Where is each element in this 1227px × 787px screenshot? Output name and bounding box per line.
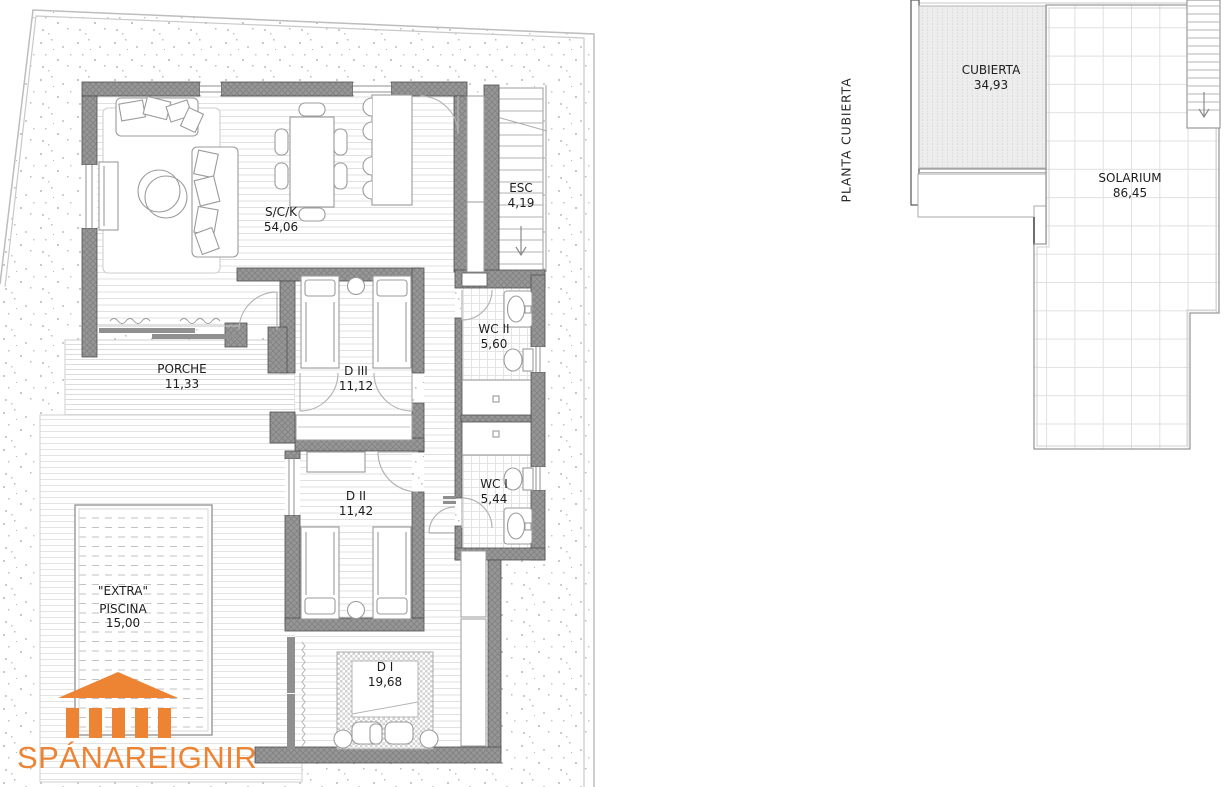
company-logo-text: SPÁNAREIGNIR bbox=[17, 740, 257, 776]
wc2-toilet bbox=[504, 349, 533, 371]
exterior-stair bbox=[497, 85, 547, 272]
room-label-solarium: SOLARIUM86,45 bbox=[1098, 171, 1161, 201]
room-label-d1: D I19,68 bbox=[368, 660, 402, 690]
room-label-esc: ESC4,19 bbox=[508, 181, 535, 211]
wc1-sink bbox=[504, 508, 532, 544]
porch-roof bbox=[918, 174, 1046, 217]
blueprint-canvas: S/C/K54,06 ESC4,19 WC II5,60 D III11,12 … bbox=[0, 0, 1227, 787]
roof-plan-title: PLANTA CUBIERTA bbox=[839, 78, 854, 203]
roof-plan bbox=[911, 0, 1220, 449]
stair-landing bbox=[462, 273, 487, 286]
sofa-top bbox=[116, 96, 203, 136]
room-label-sck: S/C/K54,06 bbox=[264, 205, 298, 235]
temple-icon bbox=[58, 672, 178, 738]
room-label-d2: D II11,42 bbox=[339, 489, 373, 519]
room-label-cubierta: CUBIERTA34,93 bbox=[962, 63, 1021, 93]
built-in-cupboard bbox=[467, 96, 484, 272]
wc1-toilet bbox=[504, 468, 533, 490]
room-label-wc2: WC II5,60 bbox=[478, 322, 509, 352]
room-label-d3: D III11,12 bbox=[339, 364, 373, 394]
room-label-piscina: "EXTRA" PISCINA 15,00 bbox=[98, 584, 148, 630]
roof-stair bbox=[1187, 0, 1220, 128]
sofa-right bbox=[192, 147, 238, 257]
room-label-porche: PORCHE11,33 bbox=[157, 362, 206, 392]
room-label-wc1: WC I5,44 bbox=[480, 477, 508, 507]
tv-unit bbox=[99, 162, 118, 230]
